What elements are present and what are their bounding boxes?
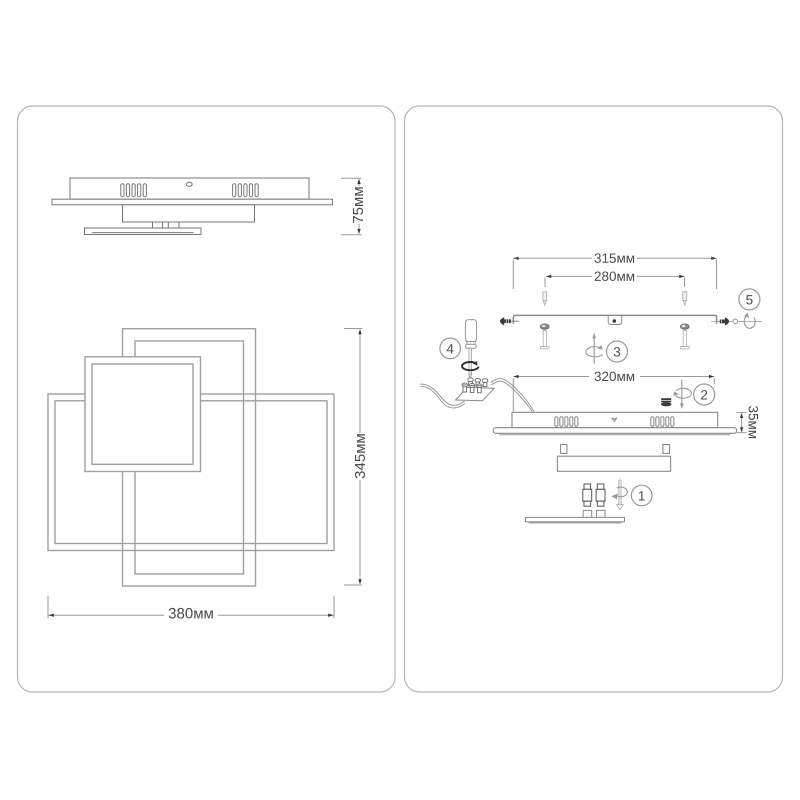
svg-text:35мм: 35мм <box>746 406 761 440</box>
svg-text:1: 1 <box>638 488 646 503</box>
svg-text:3: 3 <box>613 344 621 359</box>
svg-text:380мм: 380мм <box>168 605 214 622</box>
svg-text:75мм: 75мм <box>350 186 367 223</box>
svg-text:5: 5 <box>746 292 754 307</box>
svg-text:280мм: 280мм <box>594 269 635 284</box>
svg-text:320мм: 320мм <box>594 369 635 384</box>
svg-text:2: 2 <box>700 387 708 402</box>
svg-text:315мм: 315мм <box>594 251 635 266</box>
svg-text:4: 4 <box>446 341 454 356</box>
svg-text:345мм: 345мм <box>352 433 369 479</box>
